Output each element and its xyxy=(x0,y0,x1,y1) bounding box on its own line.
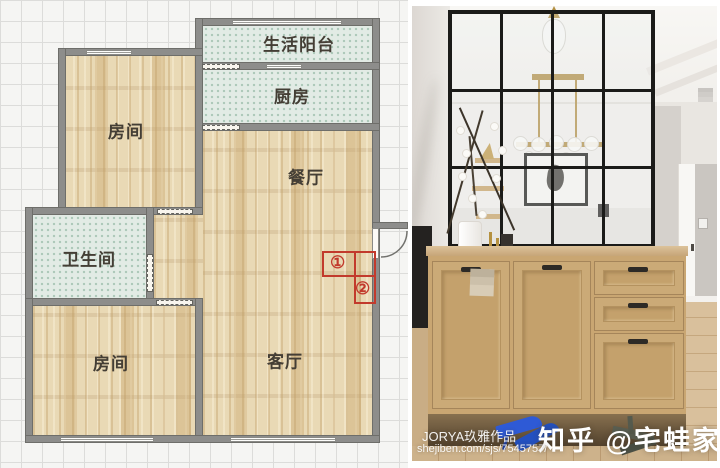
cabinet-handle xyxy=(628,267,648,272)
cabinet-drawer-3 xyxy=(594,333,684,409)
cabinet-top xyxy=(426,246,688,256)
partition-muntin xyxy=(448,89,655,92)
source-url: shejiben.com/sjs/7545757/ xyxy=(417,443,547,455)
room-label-balcony: 生活阳台 xyxy=(263,31,335,56)
cotton-bud xyxy=(490,122,499,131)
cabinet-handle xyxy=(628,303,648,308)
cotton-bud xyxy=(462,149,471,158)
room-label-dining: 餐厅 xyxy=(288,164,324,189)
room-label-bedroom-top: 房间 xyxy=(108,118,144,143)
cotton-bud xyxy=(458,172,467,181)
entry-door-arc-icon xyxy=(380,230,408,258)
partition-muntin xyxy=(448,166,655,169)
window xyxy=(60,437,154,442)
hallway-floor xyxy=(154,213,203,300)
zhihu-watermark: 知乎 @宅蛙家居 xyxy=(538,419,717,458)
interior-photo-panel: 知乎 @宅蛙家居 JORYA玖雅作品 shejiben.com/sjs/7545… xyxy=(412,6,717,461)
cotton-bud xyxy=(498,146,507,155)
wall xyxy=(58,48,66,215)
annotation-number-1: ① xyxy=(330,254,345,271)
floor-plan-panel: ① ② 房间 生活阳台 厨房 餐厅 卫生间 房间 客厅 xyxy=(0,0,408,468)
partition-mullion xyxy=(551,10,554,248)
room-label-kitchen: 厨房 xyxy=(274,83,310,108)
wall xyxy=(195,298,203,443)
partition-mullion xyxy=(602,10,605,248)
screenshot: ① ② 房间 生活阳台 厨房 餐厅 卫生间 房间 客厅 xyxy=(0,0,720,468)
cotton-bud xyxy=(492,174,501,183)
annotation-number-2: ② xyxy=(355,280,370,297)
room-label-living: 客厅 xyxy=(267,348,303,373)
door-opening xyxy=(157,209,193,214)
partition-frame xyxy=(651,10,655,248)
cotton-bud xyxy=(468,194,477,203)
cotton-bud xyxy=(456,126,465,135)
window xyxy=(230,437,336,442)
cabinet-handle xyxy=(628,339,648,344)
cotton-bud xyxy=(478,210,487,219)
light-switch xyxy=(698,218,708,229)
wall xyxy=(25,298,33,443)
window xyxy=(266,64,302,69)
partition-frame xyxy=(448,10,655,14)
door-opening xyxy=(202,125,240,130)
cabinet-door-middle xyxy=(513,261,591,409)
door-handle xyxy=(691,244,694,251)
cabinet-handle xyxy=(542,265,562,270)
door-opening-interior xyxy=(695,164,717,302)
door-sticker xyxy=(470,269,495,297)
partition-mullion xyxy=(500,10,503,248)
room-label-bathroom: 卫生间 xyxy=(62,246,116,271)
wall xyxy=(25,207,33,306)
door-opening xyxy=(156,300,193,305)
door-opening xyxy=(202,64,240,69)
room-label-bedroom-bottom: 房间 xyxy=(93,350,129,375)
window xyxy=(86,50,132,55)
window xyxy=(232,20,342,25)
door-opening xyxy=(147,254,153,292)
